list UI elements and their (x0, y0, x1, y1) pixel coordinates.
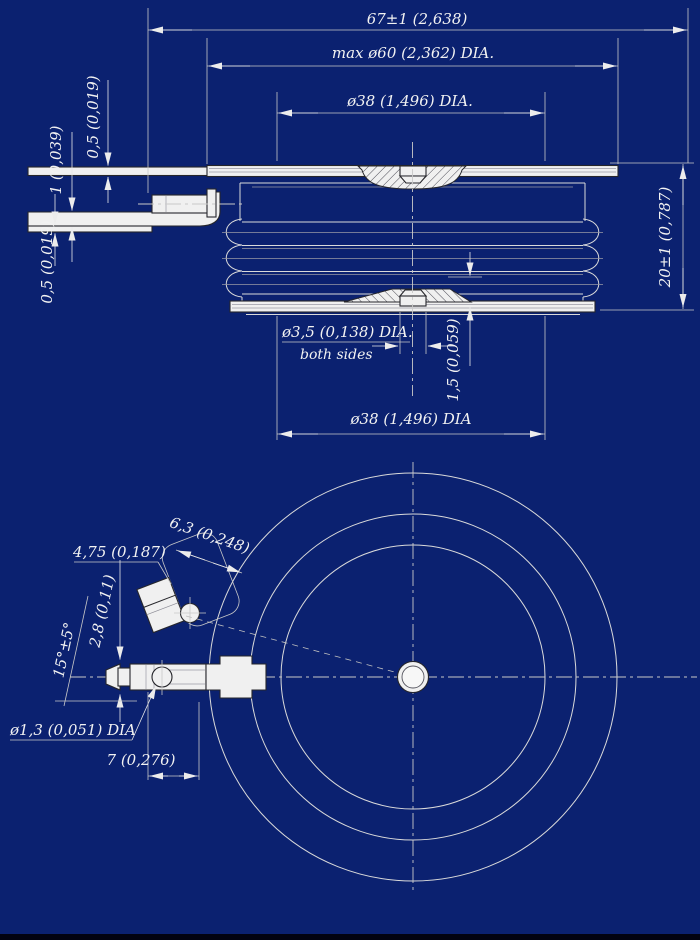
dim-overall-width-label: 67±1 (2,638) (367, 10, 468, 28)
dim-height-label: 20±1 (0,787) (656, 187, 674, 289)
dim-contact-dia-bottom-label: ø38 (1,496) DIA (349, 410, 471, 428)
dim-lead-thickness-bottom-label: 0,5 (0,019) (38, 220, 56, 303)
dim-gate-hole-note: both sides (300, 347, 373, 363)
dim-pin-hole-label: ø1,3 (0,051) DIA (9, 721, 136, 739)
dim-lead-thickness-top-label: 0,5 (0,019) (84, 75, 102, 158)
dim-recess-depth-label: 1,5 (0,059) (444, 318, 462, 401)
bottom-strip (0, 934, 700, 940)
dim-contact-dia-top-label: ø38 (1,496) DIA. (346, 92, 473, 110)
drawing-background (0, 0, 700, 940)
dim-tab-width-label: 4,75 (0,187) (72, 543, 166, 561)
dim-lead-thickness-mid-label: 1 (0,039) (47, 125, 65, 194)
center-hole-inner (402, 666, 424, 688)
dim-gate-hole-label: ø3,5 (0,138) DIA. (281, 323, 413, 341)
dim-pin-length-label: 7 (0,276) (107, 751, 176, 769)
dim-max-dia-label: max ø60 (2,362) DIA. (332, 44, 494, 62)
blueprint-page: 67±1 (2,638) max ø60 (2,362) DIA. ø38 (1… (0, 0, 700, 940)
technical-drawing: 67±1 (2,638) max ø60 (2,362) DIA. ø38 (1… (0, 0, 700, 940)
